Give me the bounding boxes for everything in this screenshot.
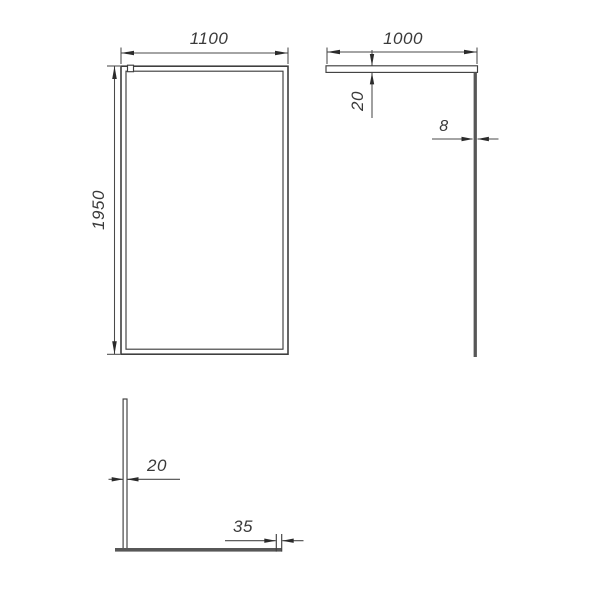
front-view-inner-frame	[126, 71, 283, 349]
arrowhead-left	[327, 50, 340, 55]
arrowhead-left	[127, 477, 139, 481]
wall-profile-width-label: 35	[233, 517, 253, 536]
arrowhead-bottom	[112, 341, 117, 354]
arrowhead-top	[112, 66, 117, 79]
arrowhead-left	[477, 137, 489, 141]
top-bar-thickness-dimension: 20	[109, 456, 181, 482]
arrowhead-right	[464, 50, 477, 55]
arrowhead-right	[275, 51, 288, 56]
arrowhead-left	[282, 539, 294, 543]
front-width-dimension: 1100	[121, 29, 288, 64]
arrowhead-right	[462, 137, 474, 141]
front-view-top-clip	[128, 65, 134, 72]
arrowhead-right	[112, 477, 124, 481]
drawing-svg: 1100 1950 1000 20 8	[0, 0, 600, 600]
arrowhead-down	[370, 54, 374, 66]
top-view-support-bar	[123, 399, 127, 550]
wall-profile-width-dimension: 35	[225, 517, 304, 543]
side-bar-thickness-dimension: 20	[348, 50, 374, 118]
side-length-dimension: 1000	[327, 29, 477, 64]
side-bar-thickness-label: 20	[348, 91, 367, 112]
arrowhead-up	[370, 73, 374, 85]
technical-drawing-canvas: 1100 1950 1000 20 8	[0, 0, 600, 600]
top-bar-thickness-label: 20	[146, 456, 167, 475]
top-view-glass-panel	[115, 548, 282, 552]
arrowhead-right	[264, 539, 276, 543]
side-length-label: 1000	[383, 29, 423, 48]
top-view	[115, 399, 282, 552]
glass-thickness-label: 8	[439, 118, 448, 135]
front-height-dimension: 1950	[89, 66, 120, 354]
front-view-outer-frame	[121, 66, 288, 354]
side-view-support-bar	[326, 66, 478, 73]
front-height-label: 1950	[89, 190, 108, 230]
front-width-label: 1100	[190, 29, 229, 48]
arrowhead-left	[121, 51, 134, 56]
side-view-glass-edge	[474, 72, 477, 357]
front-view	[121, 65, 288, 354]
glass-thickness-dimension: 8	[432, 118, 499, 141]
